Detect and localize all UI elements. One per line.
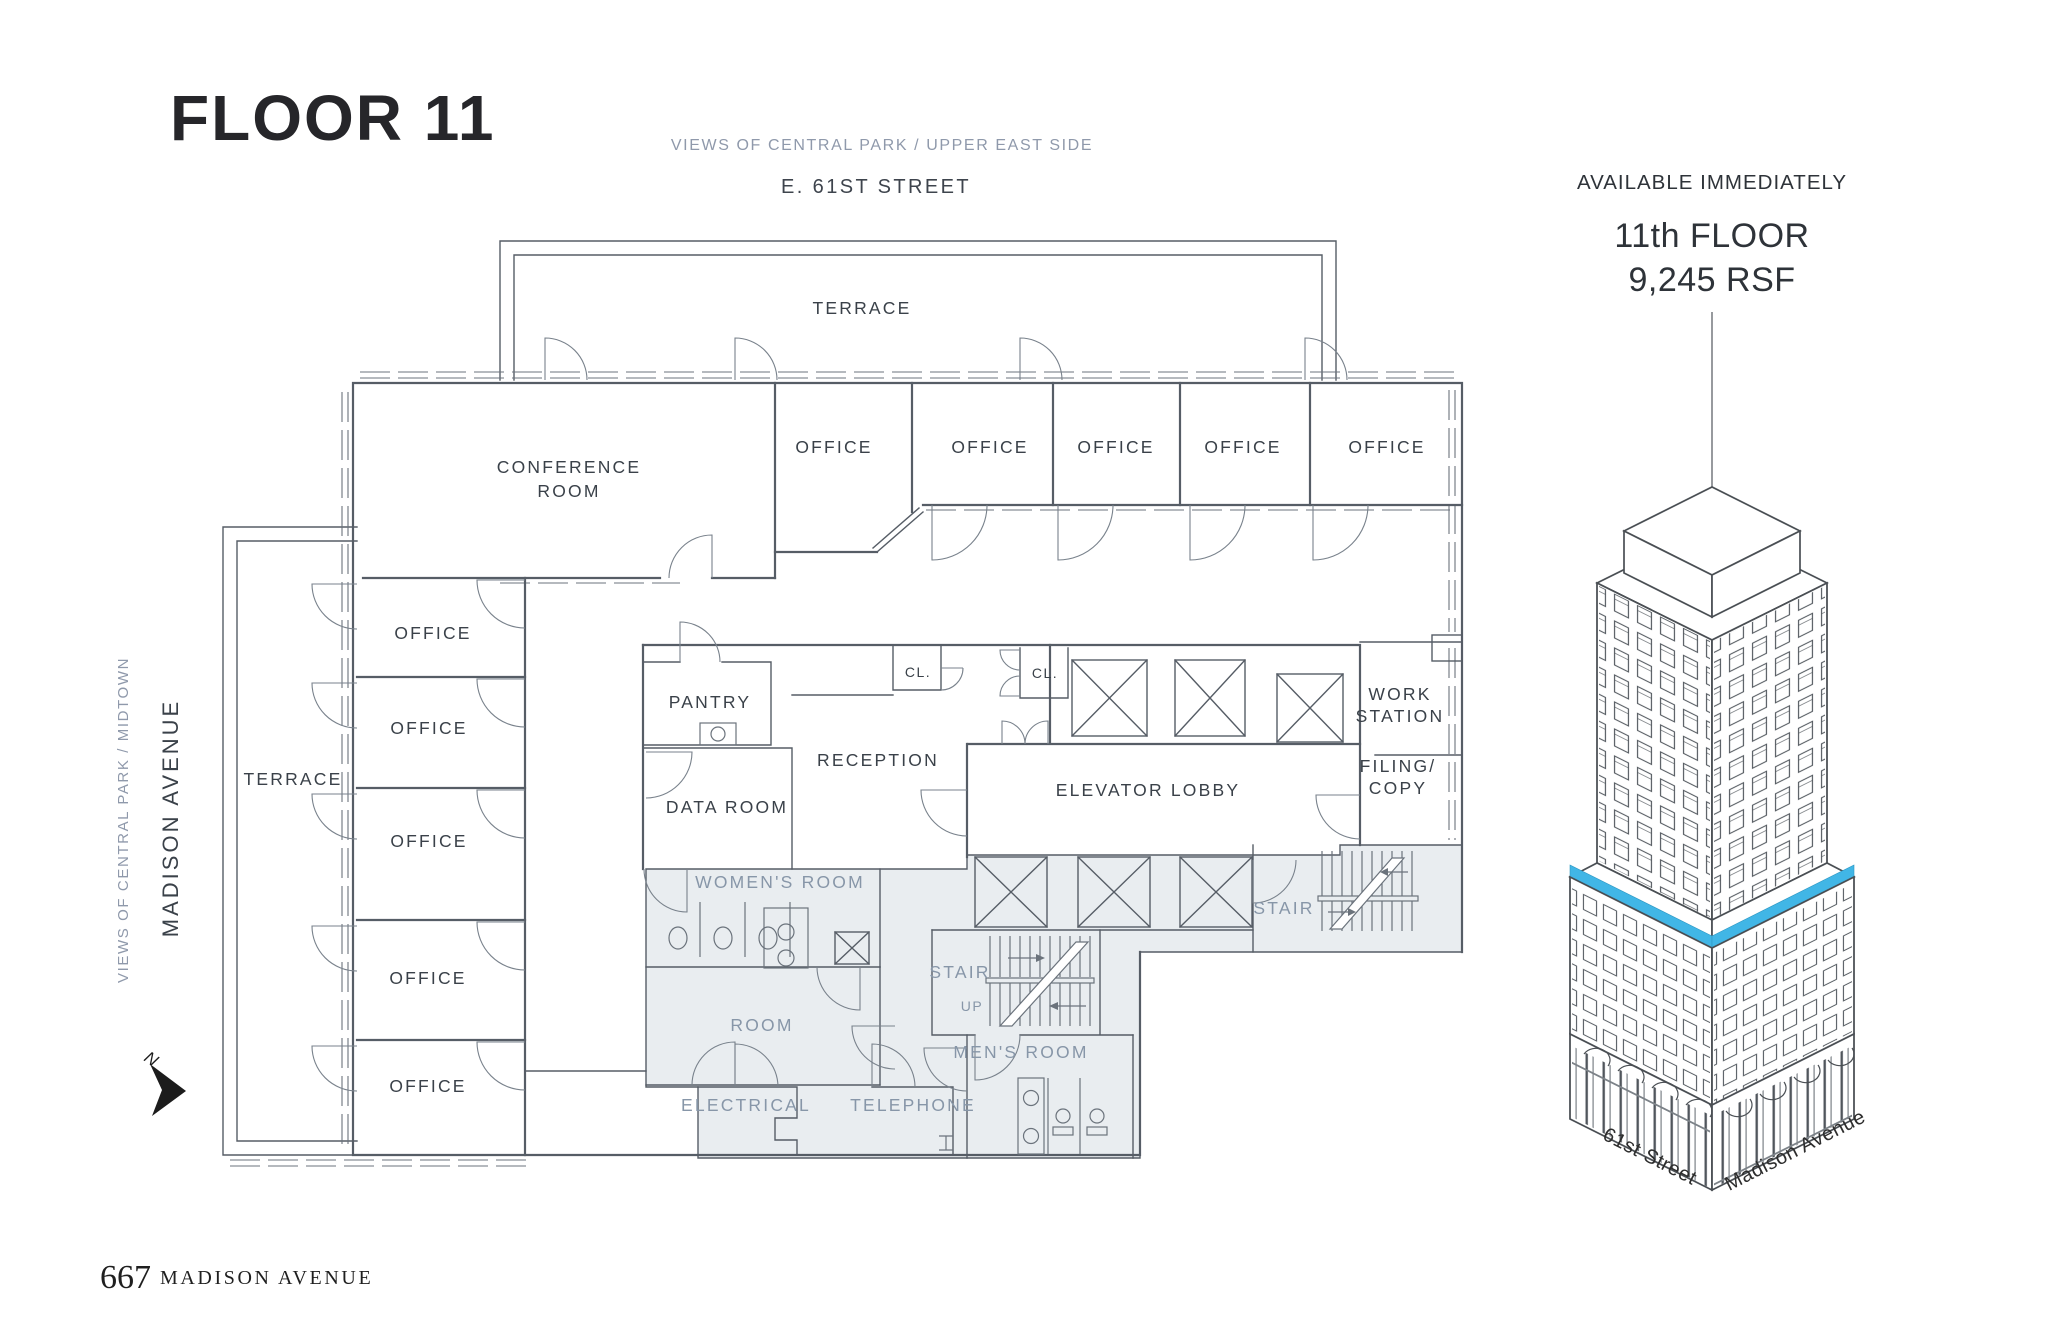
label-terrace-left: TERRACE (243, 769, 342, 789)
label-work-station-1: WORK (1368, 684, 1431, 704)
label-filing-1: FILING/ (1360, 756, 1437, 776)
label-office-l4: OFFICE (389, 968, 466, 988)
label-data-room: DATA ROOM (666, 797, 788, 817)
label-closet-1: CL. (905, 664, 931, 680)
label-office-t2: OFFICE (951, 437, 1028, 457)
views-note-top: VIEWS OF CENTRAL PARK / UPPER EAST SIDE (671, 137, 1093, 154)
elevator-bank-top (1072, 660, 1343, 742)
label-work-station-2: STATION (1356, 706, 1445, 726)
footer: 667 MADISON AVENUE (100, 1259, 373, 1296)
terrace-top-outline (500, 241, 1336, 380)
north-letter: N (141, 1048, 163, 1071)
label-reception: RECEPTION (817, 750, 939, 770)
label-womens-room: WOMEN'S ROOM (695, 872, 865, 892)
label-elevator-lobby: ELEVATOR LOBBY (1056, 780, 1240, 800)
avenue-label-side: MADISON AVENUE (158, 699, 183, 937)
availability-status: AVAILABLE IMMEDIATELY (1577, 171, 1847, 194)
label-room: ROOM (730, 1015, 793, 1035)
building-illustration: 61st Street Madison Avenue (1570, 487, 1869, 1196)
label-conference-1: CONFERENCE (497, 457, 642, 477)
label-electrical: ELECTRICAL (681, 1095, 811, 1115)
street-label-top: E. 61ST STREET (781, 176, 971, 198)
label-conference-2: ROOM (537, 481, 600, 501)
label-office-l1: OFFICE (394, 623, 471, 643)
footer-address-number: 667 (100, 1259, 151, 1296)
label-stair-center: STAIR (929, 962, 990, 982)
label-pantry: PANTRY (669, 692, 752, 712)
brochure-page: FLOOR 11 VIEWS OF CENTRAL PARK / UPPER E… (0, 0, 2048, 1325)
label-office-t3: OFFICE (1077, 437, 1154, 457)
label-filing-2: COPY (1369, 778, 1427, 798)
label-terrace-top: TERRACE (812, 298, 911, 318)
footer-address-name: MADISON AVENUE (160, 1267, 373, 1289)
label-up: UP (961, 998, 983, 1014)
label-office-t5: OFFICE (1348, 437, 1425, 457)
label-closet-2: CL. (1032, 665, 1058, 681)
page-title: FLOOR 11 (170, 82, 495, 154)
label-stair-right: STAIR (1253, 898, 1314, 918)
label-office-l5: OFFICE (389, 1076, 466, 1096)
north-arrow-icon (150, 1064, 186, 1116)
label-office-l3: OFFICE (390, 831, 467, 851)
availability-block: AVAILABLE IMMEDIATELY 11th FLOOR 9,245 R… (1577, 171, 1847, 498)
label-telephone: TELEPHONE (850, 1095, 976, 1115)
views-note-side: VIEWS OF CENTRAL PARK / MIDTOWN (115, 657, 132, 983)
label-mens-room: MEN'S ROOM (953, 1042, 1088, 1062)
label-office-l2: OFFICE (390, 718, 467, 738)
terrace-left-outline (223, 527, 357, 1155)
availability-floor: 11th FLOOR (1614, 217, 1809, 255)
north-arrow: N (141, 1048, 186, 1116)
header: FLOOR 11 VIEWS OF CENTRAL PARK / UPPER E… (170, 82, 1093, 198)
availability-area: 9,245 RSF (1628, 261, 1795, 299)
label-office-t4: OFFICE (1204, 437, 1281, 457)
label-office-t1: OFFICE (795, 437, 872, 457)
page-canvas: FLOOR 11 VIEWS OF CENTRAL PARK / UPPER E… (0, 0, 2048, 1325)
floor-plan: TERRACE CONFERENCE ROOM OFFICE OFFICE OF… (115, 241, 1462, 1166)
